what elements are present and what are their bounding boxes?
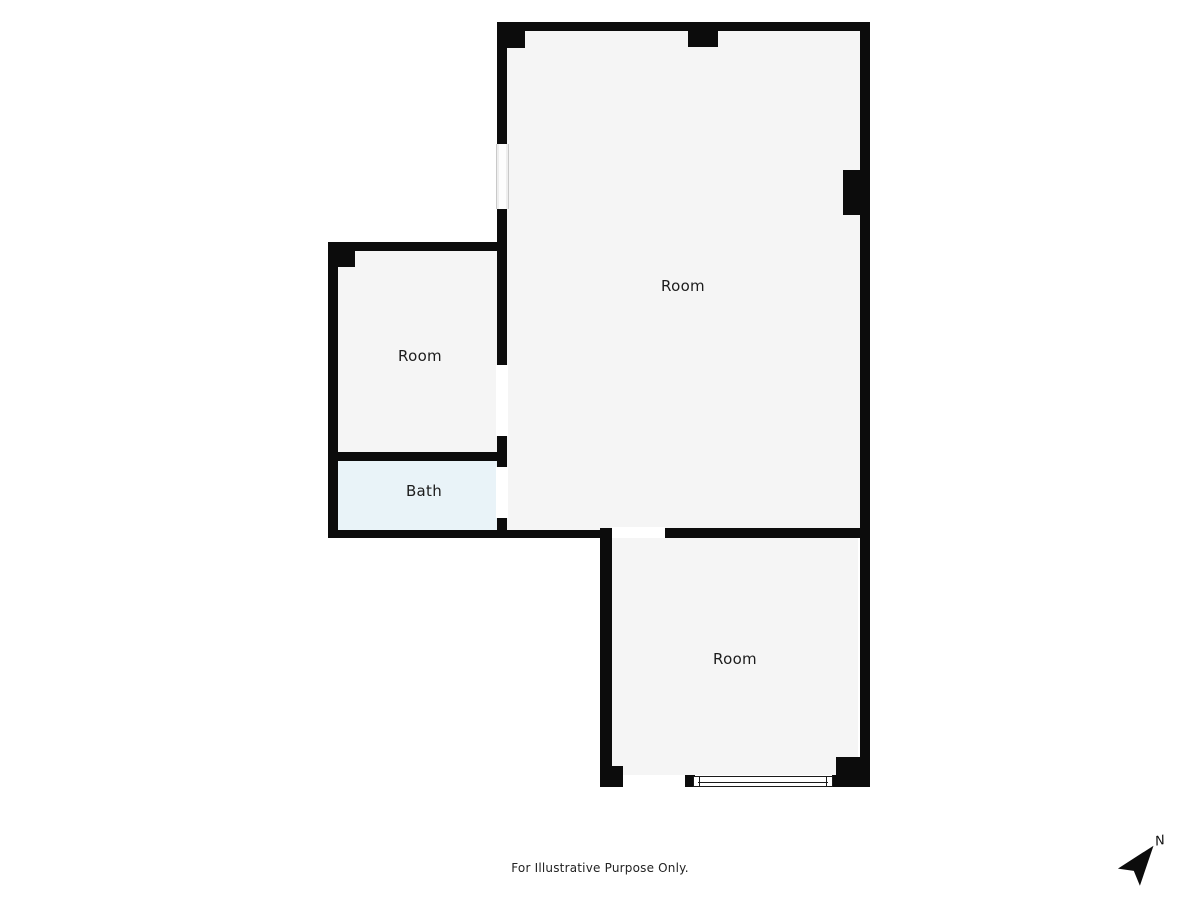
wall-post-main-topleft	[497, 22, 525, 48]
room-label-left: Room	[398, 347, 442, 365]
wall-bottom-bottomroom-right	[832, 775, 870, 787]
door-opening-bottomroom	[612, 527, 665, 538]
room-label-bottom: Room	[713, 650, 757, 668]
wall-left-main-lower	[497, 436, 507, 467]
compass-n-label: N	[1154, 833, 1167, 850]
wall-bottom-main-right	[665, 528, 870, 538]
wall-right-exterior	[860, 22, 870, 787]
disclaimer-text: For Illustrative Purpose Only.	[0, 861, 1200, 875]
wall-bath-separator	[338, 452, 498, 461]
door-opening-bath	[496, 467, 508, 518]
wall-post-leftroom-topleft	[328, 242, 355, 267]
window-left-wall	[496, 144, 509, 209]
wall-stub-top-middle	[688, 31, 718, 47]
window-frame-line	[698, 782, 828, 783]
north-compass: N	[1103, 826, 1181, 894]
wall-bottom-leftblock	[328, 530, 612, 538]
wall-pillar-right	[843, 170, 860, 215]
wall-left-bottomroom	[600, 528, 612, 787]
room-label-top-right: Room	[661, 277, 705, 295]
north-arrow-icon: N	[1103, 826, 1181, 894]
wall-bottom-bottomroom-left	[600, 775, 623, 787]
window-frame-cap-left	[699, 777, 700, 786]
door-opening-leftroom	[496, 365, 508, 436]
wall-left-main-mid	[497, 209, 507, 365]
window-bottom-wall	[693, 776, 833, 787]
wall-post-bottomroom-right	[836, 757, 862, 776]
window-frame-cap-right	[826, 777, 827, 786]
wall-left-leftblock	[328, 242, 338, 538]
wall-post-bottomroom-left	[612, 766, 623, 776]
floorplan-page: { "plan": { "title": "Floor plan", "room…	[0, 0, 1200, 900]
wall-top-main	[497, 22, 870, 31]
room-label-bath: Bath	[406, 482, 442, 500]
